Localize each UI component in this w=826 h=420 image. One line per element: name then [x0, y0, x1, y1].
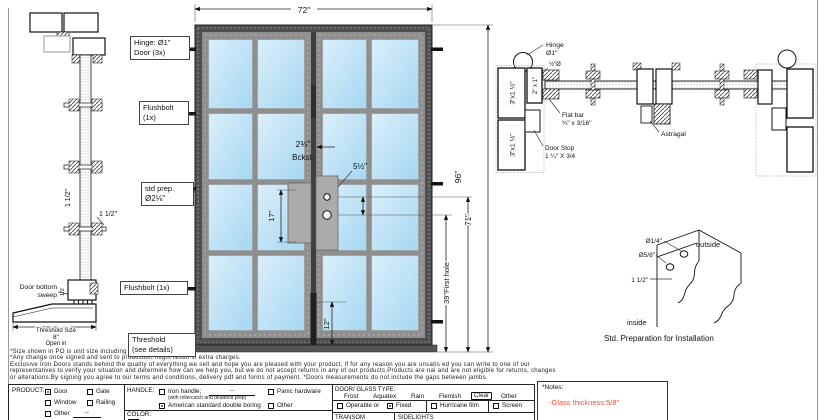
dim-lock-spacing: 17" — [267, 210, 276, 221]
callout-flushbolt-top: Flushbolt (1x) — [139, 101, 189, 125]
backset-plate — [288, 183, 311, 243]
checkbox-other-handle — [268, 403, 274, 409]
notes-label: *Notes: — [542, 385, 563, 392]
meeting-stile-right — [656, 69, 672, 104]
detail-hole-big-label: Ø5/8" — [639, 252, 656, 259]
checkbox-american-boring — [159, 403, 165, 409]
glass-pane — [209, 40, 252, 108]
hinge-tick — [431, 320, 443, 324]
meeting-stile-left — [637, 69, 653, 104]
detail-hole-small-label: Ø1/4" — [646, 238, 663, 245]
checkbox-railing — [87, 400, 93, 406]
checkbox-screen — [493, 403, 499, 409]
transom-label: TRANSOM — [335, 415, 365, 420]
color-label: COLOR: — [127, 412, 151, 418]
side-spacing-dim: 1 1/2" — [65, 188, 72, 207]
sweep-dim: 1/2 — [60, 288, 66, 296]
glass-type-flemish: Flemish — [439, 394, 461, 400]
dim-first-hole: 39"First hole — [442, 262, 451, 304]
astragal-bottom — [311, 293, 317, 345]
option-gate: Gate — [96, 389, 110, 395]
callout-std-prep: std prep. Ø2⅛" — [141, 182, 194, 206]
checkbox-fixed — [387, 403, 393, 409]
callout-flushbolt-bottom: Flushbolt (1x) — [120, 281, 188, 295]
option-hurricane: Hurricane film — [440, 403, 479, 409]
threshold-section — [13, 304, 96, 322]
astragal-label: Astragal — [661, 131, 686, 138]
sweep-label-1: Door bottom — [20, 284, 58, 291]
callout-hinge: Hinge: Ø1" Door (3x) — [130, 36, 190, 60]
glass-pane — [209, 185, 252, 250]
shop-drawing-page: 1 1/2" 1 1/2" Door bottom sweep 1/2 Thre… — [0, 0, 826, 420]
glass-type-rain: Rain — [411, 394, 424, 400]
checkbox-operable — [337, 403, 343, 409]
notes-box: *Notes: -Glass thickness:5/8" — [537, 381, 668, 420]
option-fixed: Fixed — [396, 403, 411, 409]
glass-pane — [372, 40, 418, 108]
flat-bar-label-2: ¾" x 3/16" — [562, 120, 592, 127]
glass-pane — [209, 114, 252, 179]
title-block: PRODUCT: Door Gate Window Railing Other … — [8, 384, 535, 420]
glass-pane — [258, 40, 304, 108]
option-other-product: Other — [54, 411, 70, 417]
option-american-boring: American standard double boring — [168, 403, 261, 409]
checkbox-other-product — [45, 411, 51, 417]
checkbox-window — [45, 400, 51, 406]
door-elevation: 72" 96" 71" 39"First hole 17" 12" 5½" — [184, 2, 493, 352]
side-muntin-dim: 1 1/2" — [99, 211, 118, 218]
glass-pane — [323, 40, 366, 108]
detail-outside-label: outside — [696, 240, 720, 249]
checkbox-door — [45, 389, 51, 395]
jamb-tube-right-a — [787, 69, 813, 118]
glass-pane — [372, 114, 418, 179]
flat-bar-label-1: Flat bar — [562, 112, 585, 119]
checkbox-gate — [87, 389, 93, 395]
dim-width: 72" — [298, 5, 310, 15]
fine-print: *Size shown in PO is unit size including… — [10, 349, 718, 381]
door-stop-label-1: Door Stop — [545, 145, 575, 152]
glass-type-aquatex: Aquatex — [373, 394, 396, 400]
door-stop-section-right — [772, 108, 786, 130]
side-section-view: 1 1/2" 1 1/2" Door bottom sweep 1/2 Thre… — [13, 13, 118, 347]
dim-handle-height: 71" — [464, 214, 473, 226]
option-other-handle: Other — [277, 403, 293, 409]
glass-pane — [372, 185, 418, 250]
glass-pane — [209, 256, 252, 330]
dim-hole-spacing: 5½" — [353, 162, 367, 171]
detail-hole-big — [666, 264, 674, 270]
iron-handle-note: (with rollercatch and deadbolt prep) — [168, 396, 246, 401]
glass-pane — [372, 256, 418, 330]
plan-hinge-label-2: Ø1" — [546, 50, 558, 57]
hinge-tick — [431, 48, 443, 52]
astragal-section — [654, 104, 670, 124]
detail-edge-dist: 1 1/2" — [631, 277, 648, 284]
detail-inside-label: inside — [627, 318, 647, 327]
glass-pane — [258, 256, 304, 330]
glass-type-other: Other — [501, 394, 517, 400]
option-window: Window — [54, 400, 76, 406]
callout-threshold: Threshold (see details) — [128, 333, 196, 357]
glass-type-frost: Frost — [344, 394, 358, 400]
handle-label: HANDLE: — [127, 388, 154, 394]
sweep-label-2: sweep — [37, 292, 57, 299]
detail-hole-small — [680, 251, 688, 257]
glass-type-label: DOOR/ GLASS TYPE: — [335, 387, 395, 393]
stop-tube-label: 2" x 1" — [533, 77, 539, 94]
option-railing: Railing — [96, 400, 115, 406]
product-label: PRODUCT: — [12, 388, 44, 394]
threshold-swing-label: Open in — [45, 341, 66, 347]
glass-thickness-note: -Glass thickness:5/8" — [549, 399, 619, 407]
other-product-fill: -- — [73, 411, 101, 418]
astragal-top — [311, 85, 316, 118]
sidelights-label: SIDELIGHTS — [398, 415, 434, 420]
option-operable: Operable or — [346, 403, 379, 409]
dim-height: 96" — [453, 171, 463, 183]
hinge-barrel-right — [778, 50, 796, 68]
drawing-canvas: 1 1/2" 1 1/2" Door bottom sweep 1/2 Thre… — [0, 0, 826, 354]
detail-caption: Std. Preparation for Installation — [604, 334, 714, 343]
option-door: Door — [54, 389, 68, 395]
checkbox-hurricane — [431, 403, 437, 409]
backset-value: 2¾" — [296, 139, 311, 149]
jamb-tube-b-label: 3"x1 ½" — [509, 133, 517, 157]
anchor-dim: ½"Ø — [549, 61, 561, 68]
deadbolt-hole — [324, 194, 330, 200]
threshold-size-value: 8" — [53, 334, 60, 341]
handle-hole — [323, 211, 331, 219]
plan-section-view: Hinge Ø1" ½"Ø 3"x1 ½" 3"x1 ½" 2" x 1" — [496, 42, 816, 176]
dim-bottom-rail: 12" — [322, 318, 331, 329]
jamb-tube-right-b — [787, 127, 813, 172]
backset-label: Bckst. — [292, 153, 314, 162]
installation-detail: Ø1/4" Ø5/8" 1 1/2" outside inside Std. P… — [604, 230, 741, 343]
plan-hinge-label-1: Hinge — [546, 42, 564, 49]
option-screen: Screen — [502, 403, 522, 409]
hinge-tick — [431, 182, 443, 186]
jamb-tube-a-label: 3"x1 ½" — [509, 81, 517, 105]
checkbox-iron-handle — [159, 389, 165, 395]
option-panic: Panic hardware — [277, 389, 321, 395]
door-stop-section — [525, 110, 540, 132]
checkbox-panic — [268, 389, 274, 395]
door-stop-label-2: 1 ¼" X 3/4 — [545, 153, 576, 160]
